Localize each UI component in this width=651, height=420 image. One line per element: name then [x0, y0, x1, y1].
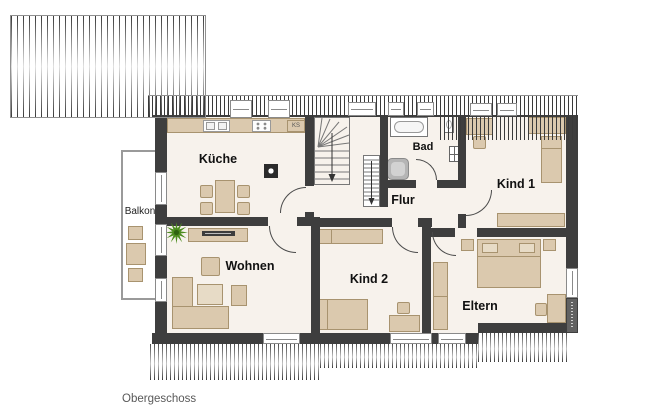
roof-hatch-bottom-right — [478, 333, 570, 362]
desk — [547, 294, 566, 323]
door-gap — [268, 217, 297, 226]
dining-chair — [200, 202, 213, 215]
room-label-balkon: Balkon — [119, 206, 161, 217]
wall-kueche-flur — [305, 117, 314, 186]
bathtub — [390, 117, 428, 137]
chimney-block — [264, 164, 278, 178]
window — [438, 333, 466, 344]
wall-west — [155, 256, 167, 278]
room-label-kind2: Kind 2 — [334, 272, 404, 286]
wall-flur-kind1 — [458, 214, 466, 228]
wall-south — [466, 333, 478, 344]
balcony-table — [126, 243, 146, 265]
wall-south — [300, 333, 320, 344]
window — [417, 102, 434, 116]
dining-chair — [200, 185, 213, 198]
stairs-main — [314, 117, 350, 185]
window — [388, 102, 404, 116]
wall-bad-flur — [437, 180, 458, 188]
wardrobe — [433, 262, 448, 330]
dining-chair — [237, 202, 250, 215]
window — [566, 268, 578, 298]
room-label-kind1: Kind 1 — [481, 177, 551, 191]
wall-kind1-eltern — [477, 228, 570, 237]
kitchen-counter — [167, 118, 305, 133]
wall-flur-kind2 — [418, 218, 432, 227]
window — [497, 103, 517, 116]
tv — [202, 231, 235, 236]
wall-west — [155, 117, 167, 172]
balcony-door — [155, 224, 167, 256]
wall-flur-kind2 — [320, 218, 392, 227]
floorplan-obergeschoss: KS — [0, 0, 651, 420]
door-gap — [305, 186, 314, 213]
window — [263, 333, 300, 344]
window — [470, 103, 492, 116]
side-chair — [231, 285, 247, 306]
sofa-l-section — [172, 306, 229, 329]
roof-hatch-bottom-left — [150, 344, 320, 380]
desk — [389, 315, 420, 332]
double-bed — [477, 239, 541, 288]
wall-south — [152, 333, 263, 344]
wall-south — [320, 333, 390, 344]
shower — [387, 158, 409, 180]
window — [230, 100, 252, 118]
bed — [313, 229, 383, 244]
desk-chair — [397, 302, 410, 314]
window — [155, 172, 167, 205]
sofa — [497, 213, 565, 227]
kitchen-fridge: KS — [287, 120, 305, 132]
balcony-chair — [128, 226, 143, 240]
coffee-table — [197, 284, 223, 305]
window — [348, 102, 376, 116]
wall-kind2-eltern — [422, 227, 431, 333]
door-gap — [455, 228, 477, 237]
roof-hatch-top-right — [440, 95, 578, 140]
plant-icon — [165, 222, 189, 244]
wall-wohnen-kind2 — [311, 226, 320, 333]
bed — [541, 136, 562, 183]
bed — [313, 299, 368, 330]
room-label-eltern: Eltern — [445, 299, 515, 313]
door-gap — [392, 218, 418, 227]
dining-table — [215, 180, 235, 213]
window — [268, 100, 290, 118]
fridge-label: KS — [292, 123, 300, 129]
balcony-chair — [128, 268, 143, 282]
room-label-flur: Flur — [378, 193, 428, 207]
window — [155, 278, 167, 302]
door-gap — [458, 188, 466, 214]
wall-bad-flur — [388, 180, 416, 188]
watermark-strip — [567, 299, 577, 332]
room-label-wohnen: Wohnen — [215, 259, 285, 273]
window — [390, 333, 432, 344]
nightstand — [461, 239, 474, 251]
roof-hatch-bottom-mid — [320, 344, 478, 368]
kitchen-sink — [203, 120, 230, 132]
wall-south — [478, 323, 570, 333]
dining-chair — [237, 185, 250, 198]
door-gap — [416, 180, 437, 188]
room-label-bad: Bad — [403, 141, 443, 153]
floor-title: Obergeschoss — [122, 393, 196, 405]
nightstand — [543, 239, 556, 251]
kitchen-stove — [252, 120, 271, 132]
room-label-kueche: Küche — [185, 152, 251, 166]
desk-chair — [535, 303, 547, 316]
wall-kueche-wohnen — [297, 217, 320, 226]
